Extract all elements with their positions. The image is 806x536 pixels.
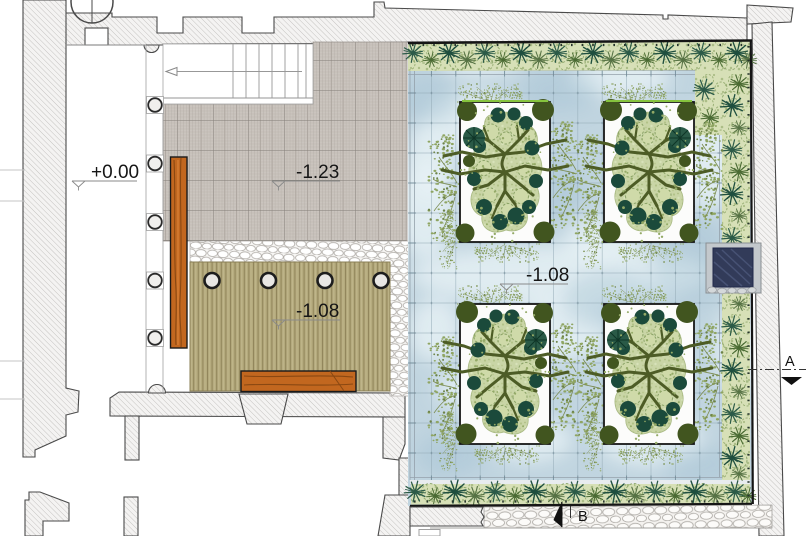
svg-text:B: B (578, 509, 588, 525)
svg-text:+0.00: +0.00 (91, 162, 139, 183)
svg-text:-1.23: -1.23 (296, 162, 339, 183)
svg-text:-1.08: -1.08 (526, 265, 569, 286)
svg-text:A: A (785, 354, 795, 370)
svg-text:-1.08: -1.08 (296, 301, 339, 322)
